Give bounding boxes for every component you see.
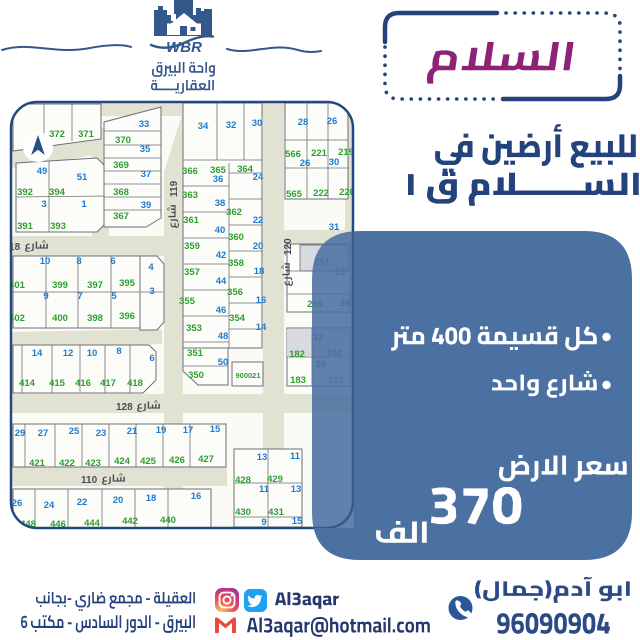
svg-text:48: 48 — [218, 331, 229, 342]
svg-text:12: 12 — [63, 348, 74, 359]
svg-text:1: 1 — [81, 199, 87, 210]
svg-text:417: 417 — [100, 378, 116, 389]
svg-text:369: 369 — [113, 160, 129, 171]
svg-text:8: 8 — [116, 346, 121, 357]
svg-text:9: 9 — [261, 517, 266, 528]
svg-text:358: 358 — [228, 258, 244, 269]
svg-text:33: 33 — [139, 119, 150, 130]
svg-text:36: 36 — [213, 174, 224, 185]
svg-text:14: 14 — [32, 348, 43, 359]
svg-text:425: 425 — [140, 456, 157, 467]
svg-text:3: 3 — [149, 286, 154, 297]
svg-text:222: 222 — [313, 188, 329, 199]
svg-text:31: 31 — [329, 222, 340, 233]
svg-text:354: 354 — [229, 313, 246, 324]
svg-text:395: 395 — [119, 278, 136, 289]
svg-text:10: 10 — [87, 348, 98, 359]
svg-text:219: 219 — [338, 147, 354, 158]
svg-text:364: 364 — [237, 164, 254, 175]
svg-text:421: 421 — [29, 458, 46, 469]
svg-text:17: 17 — [183, 425, 194, 436]
svg-text:13: 13 — [257, 452, 268, 463]
svg-text:40: 40 — [215, 225, 226, 236]
svg-text:351: 351 — [187, 348, 204, 359]
svg-text:19: 19 — [156, 425, 167, 436]
svg-text:396: 396 — [119, 311, 135, 322]
svg-text:442: 442 — [122, 516, 138, 527]
svg-text:24: 24 — [253, 172, 264, 183]
svg-text:37: 37 — [141, 169, 152, 180]
svg-text:359: 359 — [184, 241, 200, 252]
svg-text:26: 26 — [300, 158, 311, 169]
svg-text:35: 35 — [140, 144, 151, 155]
svg-text:565: 565 — [286, 189, 303, 200]
svg-text:183: 183 — [290, 375, 306, 386]
svg-text:13: 13 — [291, 484, 302, 495]
svg-text:11: 11 — [259, 484, 270, 495]
svg-text:39: 39 — [141, 200, 152, 211]
svg-text:398: 398 — [87, 313, 103, 324]
svg-text:38: 38 — [215, 198, 226, 209]
svg-text:42: 42 — [216, 250, 227, 261]
svg-text:397: 397 — [87, 280, 103, 291]
svg-text:20: 20 — [113, 495, 124, 506]
svg-text:50: 50 — [218, 357, 229, 368]
svg-text:391: 391 — [17, 221, 34, 232]
svg-text:128: 128 — [116, 402, 133, 413]
svg-text:15: 15 — [292, 516, 303, 527]
svg-text:362: 362 — [226, 207, 242, 218]
svg-text:30: 30 — [252, 118, 263, 129]
svg-text:356: 356 — [227, 287, 243, 298]
svg-text:429: 429 — [267, 474, 283, 485]
svg-text:24: 24 — [44, 500, 55, 511]
svg-text:424: 424 — [114, 456, 131, 467]
svg-text:15: 15 — [210, 424, 221, 435]
svg-text:23: 23 — [96, 428, 107, 439]
svg-text:120: 120 — [283, 238, 294, 255]
svg-text:26: 26 — [12, 498, 23, 509]
svg-text:25: 25 — [69, 426, 80, 437]
svg-text:29: 29 — [15, 428, 26, 439]
svg-text:22: 22 — [77, 497, 88, 508]
svg-text:3: 3 — [41, 199, 46, 210]
svg-text:368: 368 — [113, 187, 129, 198]
svg-text:22: 22 — [253, 215, 264, 226]
svg-text:26: 26 — [327, 116, 338, 127]
svg-text:9: 9 — [43, 291, 48, 302]
svg-text:34: 34 — [198, 121, 209, 132]
svg-text:49: 49 — [37, 166, 48, 177]
svg-text:393: 393 — [50, 221, 66, 232]
svg-text:6: 6 — [149, 353, 154, 364]
svg-text:399: 399 — [52, 280, 68, 291]
svg-text:400: 400 — [52, 313, 68, 324]
svg-text:182: 182 — [289, 349, 305, 360]
svg-text:21: 21 — [127, 426, 138, 437]
svg-text:11: 11 — [290, 451, 301, 462]
svg-text:426: 426 — [169, 455, 185, 466]
svg-text:361: 361 — [183, 215, 200, 226]
svg-text:119: 119 — [169, 180, 180, 197]
svg-text:900021: 900021 — [235, 371, 260, 380]
svg-text:392: 392 — [17, 187, 33, 198]
svg-text:7: 7 — [77, 291, 82, 302]
svg-text:110: 110 — [81, 475, 98, 486]
svg-text:14: 14 — [256, 322, 267, 333]
svg-text:WBR: WBR — [166, 39, 202, 56]
svg-text:10: 10 — [40, 256, 51, 267]
svg-text:394: 394 — [49, 187, 66, 198]
svg-text:418: 418 — [127, 378, 143, 389]
svg-text:440: 440 — [160, 515, 176, 526]
svg-text:371: 371 — [78, 129, 95, 140]
svg-text:366: 366 — [182, 166, 198, 177]
svg-text:20: 20 — [253, 241, 264, 252]
svg-text:427: 427 — [198, 454, 214, 465]
svg-text:16: 16 — [256, 295, 267, 306]
svg-text:428: 428 — [235, 475, 251, 486]
svg-text:32: 32 — [226, 120, 237, 131]
svg-text:566: 566 — [285, 149, 301, 160]
svg-text:350: 350 — [188, 370, 204, 381]
svg-text:5: 5 — [111, 291, 117, 302]
svg-text:27: 27 — [38, 428, 49, 439]
svg-text:422: 422 — [59, 458, 75, 469]
svg-text:416: 416 — [75, 378, 91, 389]
svg-text:355: 355 — [179, 296, 196, 307]
svg-text:30: 30 — [329, 157, 340, 168]
svg-text:18: 18 — [254, 266, 265, 277]
svg-text:430: 430 — [235, 507, 251, 518]
svg-text:18: 18 — [146, 493, 157, 504]
svg-text:360: 360 — [228, 232, 244, 243]
svg-text:372: 372 — [49, 129, 65, 140]
svg-text:431: 431 — [268, 507, 285, 518]
svg-text:221: 221 — [311, 148, 328, 159]
svg-text:46: 46 — [216, 305, 227, 316]
svg-text:51: 51 — [77, 172, 88, 183]
svg-text:414: 414 — [19, 378, 36, 389]
svg-text:353: 353 — [186, 323, 202, 334]
svg-text:363: 363 — [182, 190, 198, 201]
svg-text:44: 44 — [216, 276, 227, 287]
svg-text:367: 367 — [113, 211, 129, 222]
svg-text:415: 415 — [49, 378, 66, 389]
svg-text:28: 28 — [298, 117, 309, 128]
svg-text:8: 8 — [76, 256, 81, 267]
svg-text:16: 16 — [191, 491, 202, 502]
svg-text:6: 6 — [110, 256, 115, 267]
svg-text:4: 4 — [148, 262, 154, 273]
svg-text:423: 423 — [85, 458, 101, 469]
svg-text:357: 357 — [184, 267, 200, 278]
svg-text:370: 370 — [115, 135, 131, 146]
